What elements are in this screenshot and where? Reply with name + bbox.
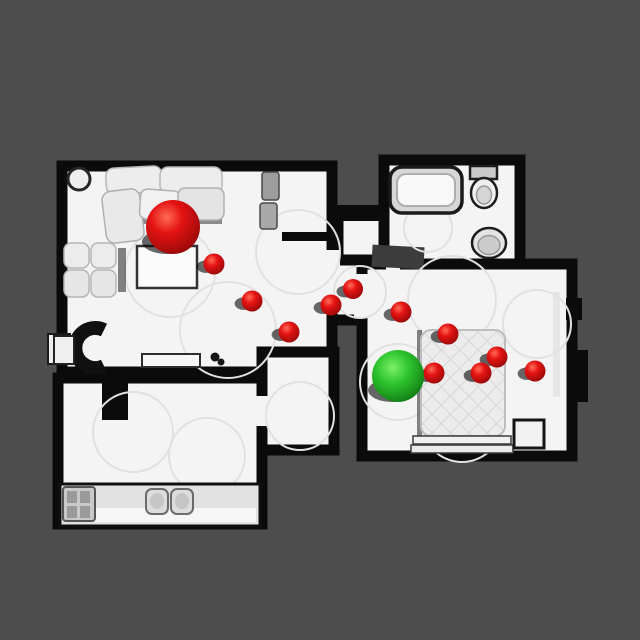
waypoint-marker bbox=[391, 302, 412, 323]
window-sliver-bedroom bbox=[553, 292, 560, 397]
wall-notch-kitchen bbox=[102, 378, 128, 420]
waypoint-marker bbox=[242, 291, 263, 312]
goal-marker bbox=[372, 350, 424, 402]
waypoint-marker bbox=[487, 347, 508, 368]
side-table bbox=[54, 336, 74, 364]
nightstand bbox=[514, 420, 544, 448]
waypoint-marker bbox=[438, 324, 459, 345]
doorway-hallway-kitchen bbox=[256, 396, 270, 426]
floorplan-render bbox=[0, 0, 640, 640]
bathroom-sink bbox=[472, 228, 506, 258]
entry-object bbox=[262, 172, 279, 200]
entry-object bbox=[260, 203, 277, 229]
waypoint-marker bbox=[321, 295, 342, 316]
bed-foot-bench bbox=[413, 436, 511, 444]
toilet bbox=[470, 166, 497, 208]
kitchen-furniture bbox=[60, 484, 260, 526]
floor-object bbox=[218, 359, 225, 366]
bed-foot-bench bbox=[411, 445, 513, 453]
waypoint-marker bbox=[424, 363, 445, 384]
wall-stub-entry-alcove bbox=[282, 232, 330, 241]
waypoint-marker bbox=[525, 361, 546, 382]
doorway-living-hallway bbox=[268, 362, 328, 376]
waypoint-marker bbox=[471, 363, 492, 384]
floor-lamp bbox=[68, 168, 90, 190]
bathtub bbox=[390, 167, 462, 213]
waypoint-marker bbox=[204, 254, 225, 275]
start-marker bbox=[146, 200, 200, 254]
wall-bump-bedroom-right-2 bbox=[568, 350, 588, 402]
wall-stub-connector-top bbox=[327, 205, 389, 221]
render-viewport[interactable] bbox=[0, 0, 640, 640]
waypoint-marker bbox=[279, 322, 300, 343]
bench bbox=[142, 354, 200, 367]
kitchen-sink bbox=[63, 487, 95, 521]
waypoint-marker bbox=[343, 279, 363, 299]
